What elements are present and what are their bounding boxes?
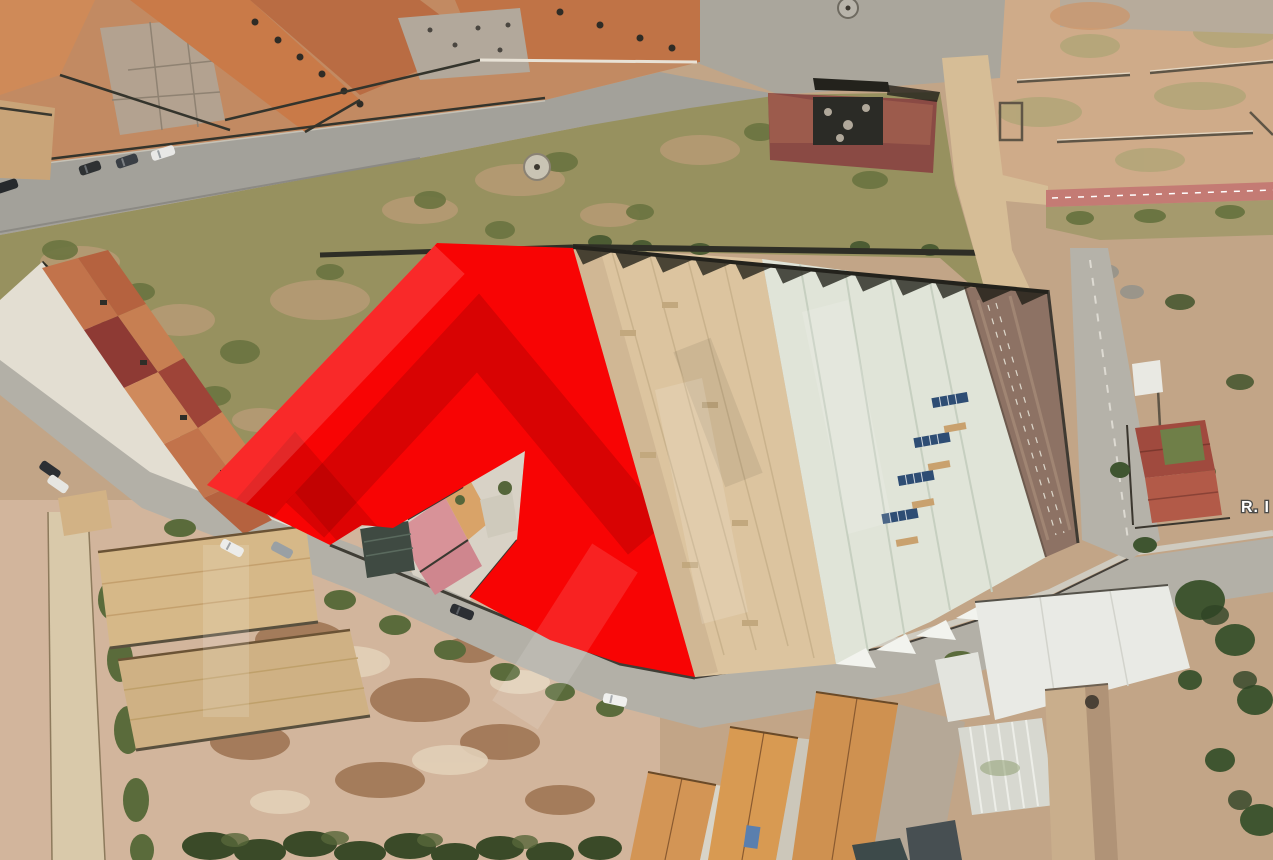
satellite-map: R. I (0, 0, 1273, 860)
watermark-light-bar (203, 545, 249, 717)
street-label: R. I (1241, 499, 1270, 516)
listing-photo: R. I (0, 0, 1273, 860)
